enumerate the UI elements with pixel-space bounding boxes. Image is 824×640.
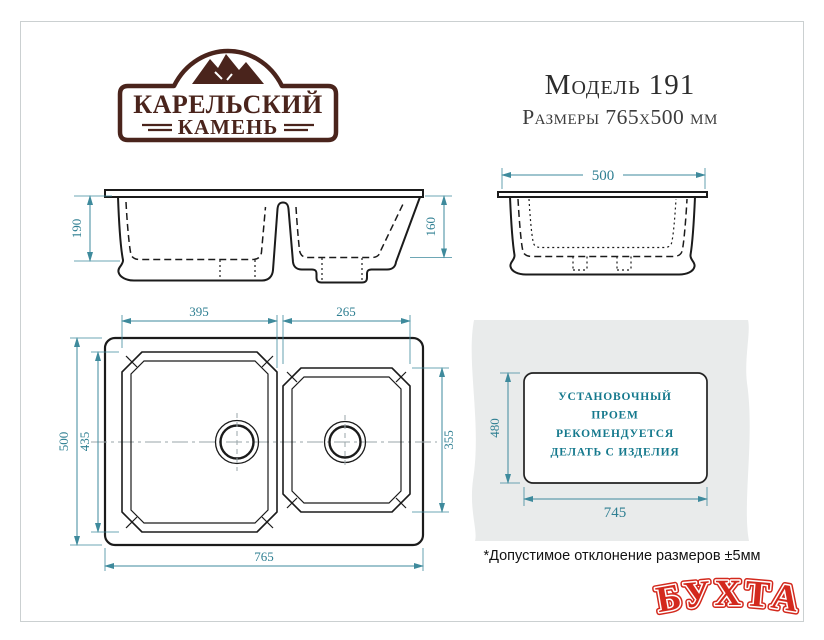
dim-label-745: 745	[604, 505, 627, 521]
right-bowl-inner-profile	[296, 202, 404, 258]
left-bowl-inner-profile	[126, 202, 266, 260]
cutout-note-line4: ДЕЛАТЬ С ИЗДЕЛИЯ	[551, 447, 680, 459]
dim-label-765: 765	[254, 549, 274, 564]
side-elevation-view: 500	[473, 158, 748, 300]
watermark-text: БУХТА	[653, 573, 805, 621]
size-subtitle: Размеры 765х500 мм	[468, 105, 772, 130]
dim-label-160: 160	[423, 217, 438, 237]
brand-logo: КАРЕЛЬСКИЙ КАМЕНЬ	[112, 42, 344, 148]
drain-recess-hidden-lines	[573, 257, 631, 271]
dim-190: 190	[69, 196, 120, 261]
logo-word-bottom: КАМЕНЬ	[178, 115, 278, 139]
install-cutout-view: УСТАНОВОЧНЫЙ ПРОЕМ РЕКОМЕНДУЕТСЯ ДЕЛАТЬ …	[452, 308, 792, 558]
dim-label-435: 435	[77, 432, 92, 452]
dim-label-480: 480	[487, 418, 502, 438]
title-block: Модель 191 Размеры 765х500 мм	[468, 70, 772, 130]
dim-label-500-plan: 500	[56, 432, 71, 452]
front-elevation-view: 190 160	[58, 162, 458, 297]
model-title: Модель 191	[468, 70, 772, 102]
cutout-note-line3: РЕКОМЕНДУЕТСЯ	[556, 428, 674, 440]
plan-view: 395 265 500 435 355	[55, 300, 463, 585]
dim-765: 765	[105, 548, 423, 571]
dim-label-190: 190	[69, 219, 84, 239]
store-watermark: БУХТА БУХТА	[636, 564, 822, 640]
shallow-bowl-hidden-profile	[529, 199, 676, 248]
bowls-outer-profile	[118, 197, 420, 283]
dim-label-395: 395	[189, 304, 209, 319]
cutout-note-line1: УСТАНОВОЧНЫЙ	[558, 389, 672, 403]
dim-label-265: 265	[336, 304, 356, 319]
drawing-sheet: КАРЕЛЬСКИЙ КАМЕНЬ Модель 191 Размеры 765…	[0, 0, 824, 640]
dim-500-side: 500	[502, 168, 705, 189]
sink-rim-profile	[105, 190, 423, 197]
drain-hidden-lines	[220, 258, 362, 281]
bowl-outer-profile-side	[510, 197, 695, 275]
cutout-note-line2: ПРОЕМ	[591, 410, 638, 422]
sink-rim-profile-side	[498, 192, 707, 197]
tolerance-footnote: *Допустимое отклонение размеров ±5мм	[452, 548, 792, 564]
dim-label-500-side: 500	[592, 168, 615, 184]
